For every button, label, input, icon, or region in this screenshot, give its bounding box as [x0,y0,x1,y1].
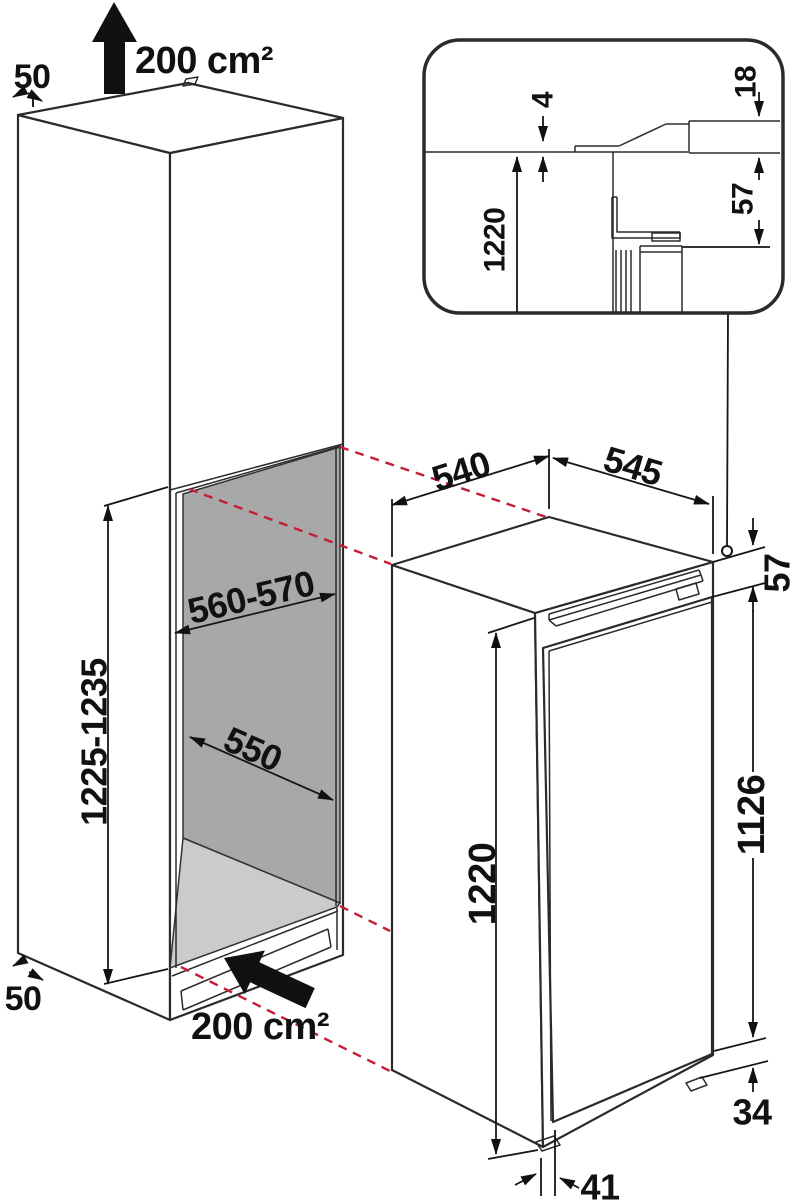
niche [170,444,343,968]
inset-dim-top-gap: 4 [527,91,560,108]
detail-inset: 4 18 57 1220 [424,40,783,313]
installation-diagram: 50 200 cm² 1225-1235 560-570 550 50 200 … [0,0,797,1200]
appliance-drawing [392,517,768,1151]
vent-area-bottom-label: 200 cm² [191,1006,329,1048]
inset-dim-panel-thickness: 18 [730,66,763,98]
inset-dim-height-ref: 1220 [479,208,512,273]
vent-area-top-label: 200 cm² [135,40,273,82]
leader-dot [722,546,732,556]
dim-niche-height: 1225-1235 [74,658,115,826]
dim-door-thickness: 41 [580,1167,620,1200]
appliance-door [543,597,712,1122]
leader-line [722,314,732,556]
dim-appliance-width: 540 [427,443,495,500]
dim-appliance-height: 1220 [462,843,504,926]
dim-bottom-wall-gap: 50 [5,980,42,1018]
dim-plinth-height: 34 [732,1092,772,1133]
inset-dim-hinge-clearance: 57 [727,183,760,215]
cabinet-drawing [18,77,343,1020]
up-arrow-icon [92,2,137,94]
rear-foot [686,1077,707,1091]
dim-appliance-depth: 545 [599,438,667,494]
dim-top-hinge-offset: 57 [757,553,797,592]
niche-rear-wall [183,447,340,903]
dim-top-wall-gap: 50 [14,58,51,96]
cabinet-left-face [18,115,170,1020]
dim-door-height: 1126 [731,775,773,855]
